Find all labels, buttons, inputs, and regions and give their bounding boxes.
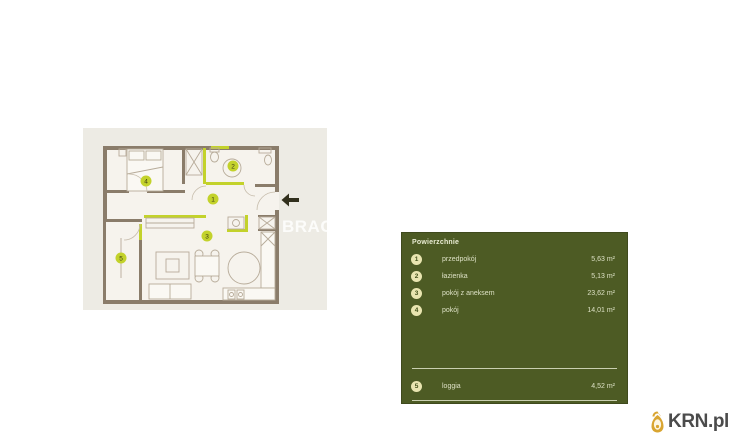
panel-title: Powierzchnie [412,239,459,246]
entrance-arrow-icon [282,194,300,207]
area-row-value: 5,13 m² [591,273,615,280]
area-row: 4 pokój 14,01 m² [411,302,615,319]
area-row-label: łazienka [442,273,468,280]
page: 1 2 3 4 5 [0,0,740,443]
area-rows: 1 przedpokój 5,63 m² 2 łazienka 5,13 m² … [411,251,615,319]
area-row-loggia: 5 loggia 4,52 m² [411,378,615,395]
area-row-number: 4 [411,305,422,316]
krn-logo-text: KRN.pl [668,411,729,433]
room-marker-5: 5 [116,253,127,264]
area-row: 2 łazienka 5,13 m² [411,268,615,285]
floorplan-svg: 1 2 3 4 5 [83,128,327,310]
room-marker-1: 1 [208,194,219,205]
krn-logo: KRN.pl [649,408,729,436]
area-row-value: 23,62 m² [587,290,615,297]
area-row: 1 przedpokój 5,63 m² [411,251,615,268]
area-row-label: loggia [442,383,461,390]
panel-divider [412,368,617,369]
floorplan-image: 1 2 3 4 5 [83,128,327,310]
room-marker-3: 3 [202,231,213,242]
area-row-value: 4,52 m² [591,383,615,390]
area-row-value: 5,63 m² [591,256,615,263]
area-row-number: 2 [411,271,422,282]
area-row-label: pokój z aneksem [442,290,495,297]
area-row-label: pokój [442,307,459,314]
area-row-number: 5 [411,381,422,392]
room-marker-4: 4 [141,176,152,187]
svg-text:4: 4 [144,178,148,185]
areas-panel: Powierzchnie 1 przedpokój 5,63 m² 2 łazi… [401,232,628,404]
watermark-text: BRAC [282,217,327,236]
krn-logo-icon [649,410,666,434]
area-row-number: 1 [411,254,422,265]
svg-text:2: 2 [231,163,235,170]
svg-text:5: 5 [119,255,123,262]
area-row-label: przedpokój [442,256,476,263]
area-row-value: 14,01 m² [587,307,615,314]
area-row-number: 3 [411,288,422,299]
svg-text:3: 3 [205,233,209,240]
room-marker-2: 2 [228,161,239,172]
area-row: 3 pokój z aneksem 23,62 m² [411,285,615,302]
panel-bottom-divider [412,400,617,401]
svg-text:1: 1 [211,196,215,203]
